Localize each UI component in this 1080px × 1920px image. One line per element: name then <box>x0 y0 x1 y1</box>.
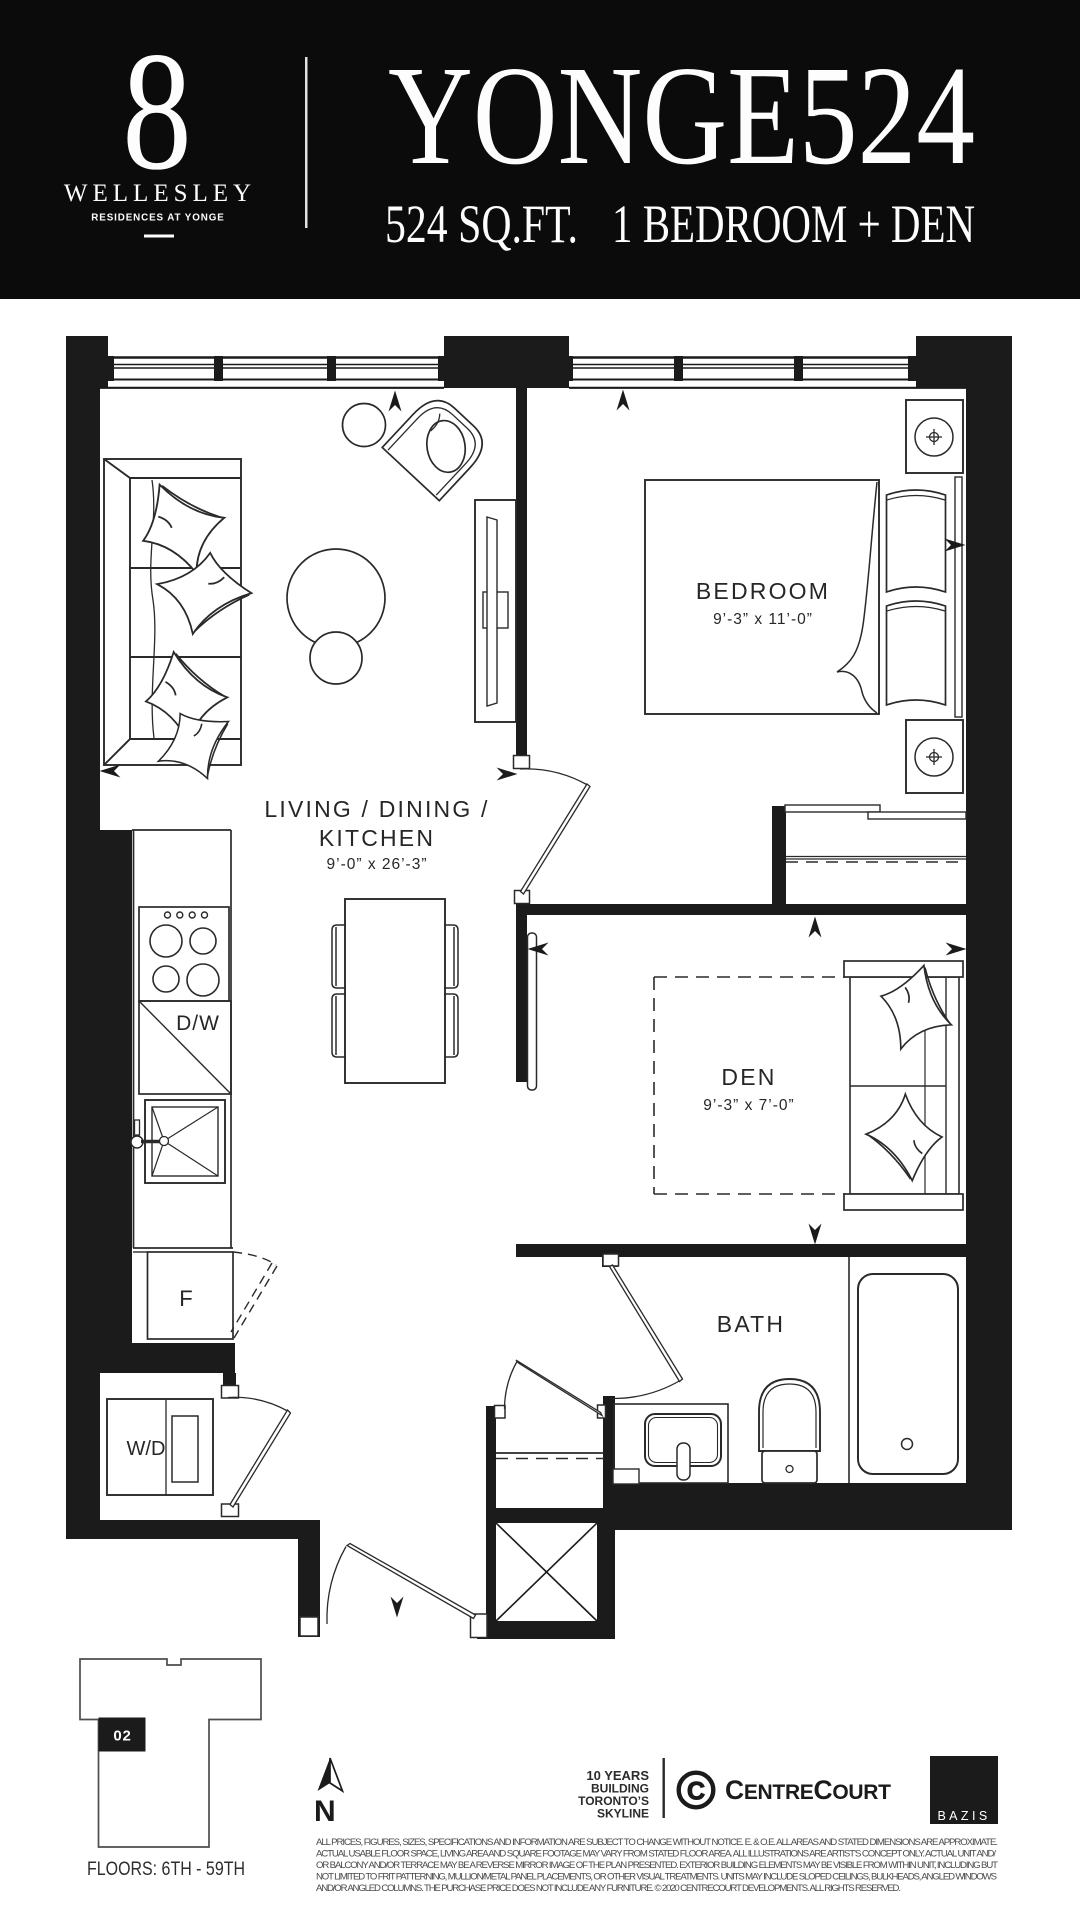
svg-text:RESIDENCES AT YONGE: RESIDENCES AT YONGE <box>91 213 224 224</box>
svg-text:1 BEDROOM + DEN: 1 BEDROOM + DEN <box>612 194 975 254</box>
svg-text:BEDROOM: BEDROOM <box>696 578 830 604</box>
svg-text:ACTUAL USABLE FLOOR SPACE, LIV: ACTUAL USABLE FLOOR SPACE, LIVING AREA A… <box>316 1849 996 1860</box>
svg-text:BATH: BATH <box>717 1311 785 1337</box>
svg-text:9’-0” x 26’-3”: 9’-0” x 26’-3” <box>327 856 428 873</box>
svg-text:F: F <box>179 1286 192 1311</box>
svg-text:BAZIS: BAZIS <box>937 1809 990 1823</box>
svg-text:SKYLINE: SKYLINE <box>597 1807 649 1821</box>
svg-text:FLOORS: 6TH - 59TH: FLOORS: 6TH - 59TH <box>87 1859 245 1880</box>
svg-text:NOT LIMITED TO FRIT PATTERNING: NOT LIMITED TO FRIT PATTERNING, MULLION/… <box>316 1872 997 1883</box>
svg-text:02: 02 <box>113 1728 131 1745</box>
svg-text:OR BALCONY AND/OR TERRACE MAY: OR BALCONY AND/OR TERRACE MAY BE A REVER… <box>316 1860 998 1871</box>
svg-text:9’-3” x 7’-0”: 9’-3” x 7’-0” <box>703 1097 794 1114</box>
svg-text:KITCHEN: KITCHEN <box>319 825 435 851</box>
svg-text:YONGE524: YONGE524 <box>388 36 975 194</box>
svg-text:DEN: DEN <box>721 1064 776 1090</box>
svg-text:W/D: W/D <box>127 1438 166 1460</box>
svg-text:N: N <box>314 1795 336 1828</box>
svg-text:D/W: D/W <box>176 1012 220 1035</box>
svg-text:C: C <box>687 1778 705 1806</box>
svg-text:WELLESLEY: WELLESLEY <box>64 180 256 207</box>
svg-text:8: 8 <box>122 16 192 205</box>
svg-text:AND/OR ANGLED COLUMNS. THE PUR: AND/OR ANGLED COLUMNS. THE PURCHASE PRIC… <box>316 1883 901 1894</box>
svg-text:9’-3” x 11’-0”: 9’-3” x 11’-0” <box>713 611 813 628</box>
svg-text:ALL PRICES, FIGURES, SIZES, SP: ALL PRICES, FIGURES, SIZES, SPECIFICATIO… <box>316 1837 998 1848</box>
svg-text:524 SQ.FT.: 524 SQ.FT. <box>385 194 578 254</box>
svg-text:LIVING / DINING /: LIVING / DINING / <box>264 796 489 822</box>
